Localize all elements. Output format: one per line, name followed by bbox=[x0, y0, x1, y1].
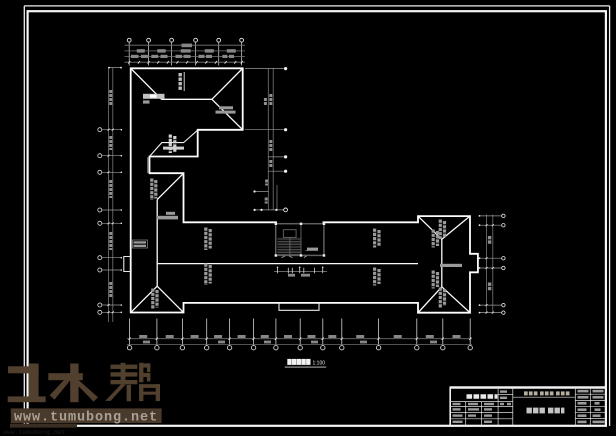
svg-text:www.tumubong.net: www.tumubong.net bbox=[14, 411, 158, 426]
svg-text:1:100: 1:100 bbox=[313, 361, 326, 367]
svg-text:www.tumubong.net: www.tumubong.net bbox=[3, 429, 66, 436]
